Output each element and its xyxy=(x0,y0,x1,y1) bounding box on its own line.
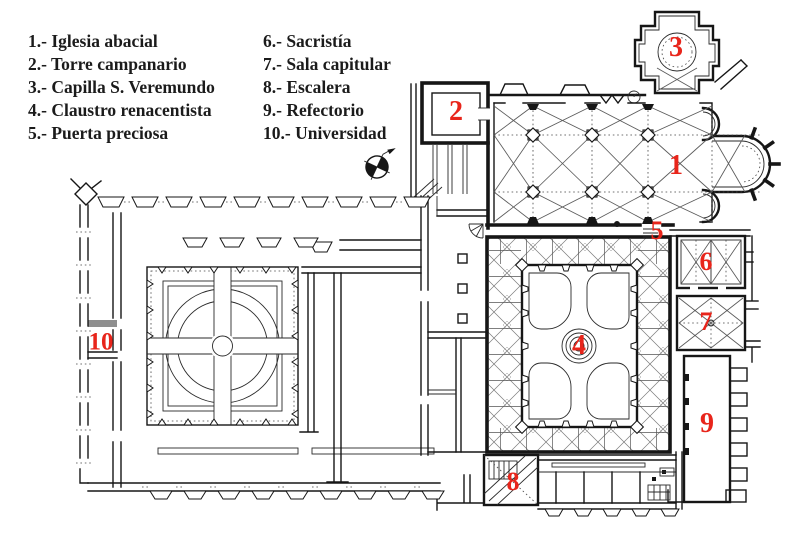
compass-rose-icon xyxy=(358,138,400,185)
south-wing xyxy=(437,452,682,510)
legend-item: 4.- Claustro renacentista xyxy=(28,99,263,122)
plan-label-3: 3 xyxy=(669,34,683,62)
chapel-san-veremundo xyxy=(635,12,747,93)
plan-label-4: 4 xyxy=(572,332,586,360)
plan-label-9: 9 xyxy=(700,410,714,438)
legend-item: 8.- Escalera xyxy=(263,76,391,99)
plan-label-2: 2 xyxy=(449,98,463,126)
legend-item: 3.- Capilla S. Veremundo xyxy=(28,76,263,99)
legend-item: 2.- Torre campanario xyxy=(28,53,263,76)
legend-item: 1.- Iglesia abacial xyxy=(28,30,263,53)
monastery-floor-plan-page: 1.- Iglesia abacial2.- Torre campanario3… xyxy=(0,0,800,539)
legend-item: 7.- Sala capitular xyxy=(263,53,391,76)
plan-label-7: 7 xyxy=(700,309,713,335)
plan-label-1: 1 xyxy=(669,152,683,180)
plan-label-10: 10 xyxy=(89,330,114,355)
plan-label-6: 6 xyxy=(700,249,713,275)
legend-item: 10.- Universidad xyxy=(263,122,391,145)
university-wing xyxy=(71,84,487,491)
legend-item: 9.- Refectorio xyxy=(263,99,391,122)
plan-label-8: 8 xyxy=(507,469,520,495)
apse xyxy=(703,108,779,222)
garden-courtyard xyxy=(147,267,298,425)
legend: 1.- Iglesia abacial2.- Torre campanario3… xyxy=(28,30,391,145)
legend-column-1: 1.- Iglesia abacial2.- Torre campanario3… xyxy=(28,30,263,145)
plan-label-5: 5 xyxy=(651,218,664,244)
chapter-room xyxy=(677,236,760,362)
puerta-preciosa-door xyxy=(614,221,620,227)
legend-item: 6.- Sacristía xyxy=(263,30,391,53)
legend-item: 5.- Puerta preciosa xyxy=(28,122,263,145)
legend-column-2: 6.- Sacristía7.- Sala capitular8.- Escal… xyxy=(263,30,391,145)
